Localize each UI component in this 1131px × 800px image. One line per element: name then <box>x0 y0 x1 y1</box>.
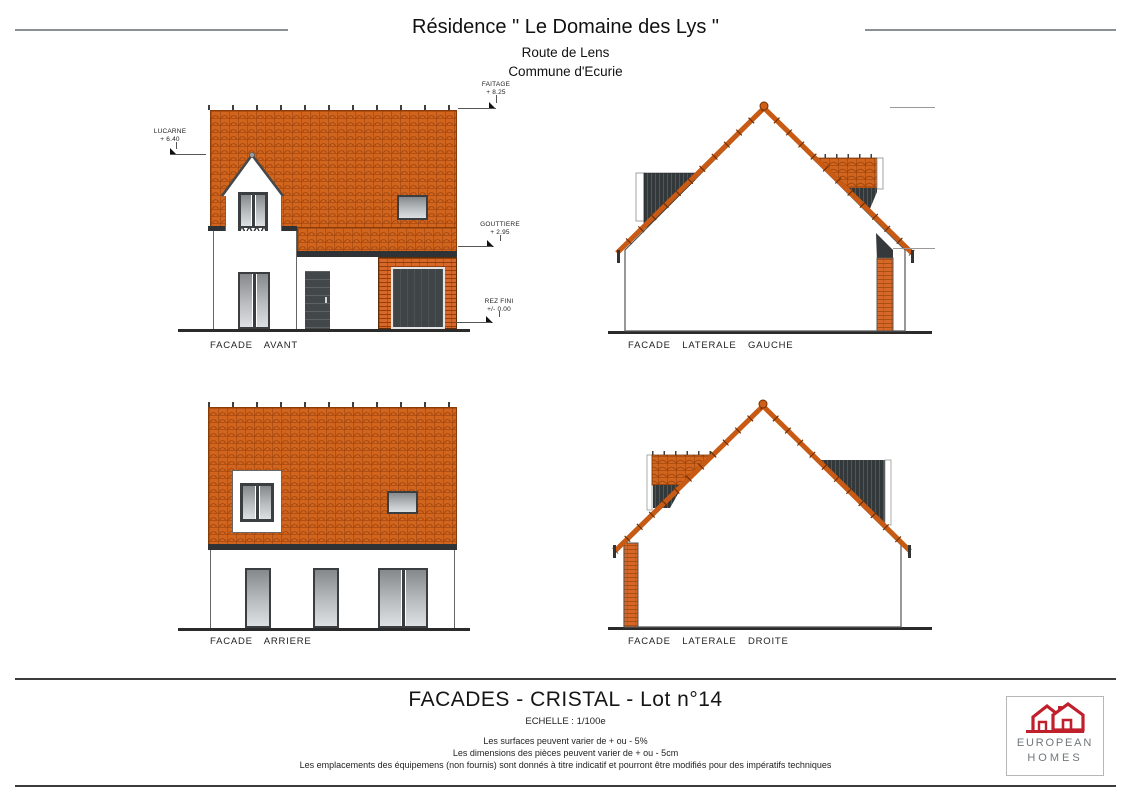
ref-line-gouttiere <box>893 248 935 249</box>
brick-pier-gauche <box>877 258 893 331</box>
french-door-pane-right <box>257 274 269 327</box>
garage-roof-edge-droite <box>647 455 652 510</box>
caption-facade-laterale-droite: FACADE LATERALE DROITE <box>628 636 789 647</box>
title-block-bottom-rule <box>15 785 1116 787</box>
caption-facade-avant: FACADE AVANT <box>210 340 298 351</box>
facade-laterale-droite-drawing <box>595 393 940 638</box>
dormer-window-rear <box>240 483 274 522</box>
annotation-gouttiere-tick <box>500 235 501 241</box>
rear-double-door-pane-right <box>406 570 427 626</box>
logo-baseline <box>1026 730 1084 733</box>
gutter-hook-left <box>617 250 620 263</box>
garage-roof-edge <box>877 158 883 189</box>
title-block-note-1: Les surfaces peuvent varier de + ou - 5% <box>0 736 1131 746</box>
title-block-top-rule <box>15 678 1116 680</box>
ridge-finial-droite <box>759 400 767 408</box>
dormer-window-pane-left <box>241 195 251 226</box>
gutter-hook-right <box>911 250 914 263</box>
page-title: Résidence " Le Domaine des Lys " <box>0 16 1131 39</box>
logo-text-line2: HOMES <box>1007 752 1103 764</box>
rear-door-2 <box>313 568 339 628</box>
dormer-window-rear-pane-right <box>260 486 272 519</box>
dormer-window-rear-panes <box>243 486 271 519</box>
ref-line-faitage <box>890 107 935 108</box>
rear-door-1 <box>245 568 271 628</box>
annotation-faitage-label: FAITAGE <box>482 81 510 88</box>
annotation-lucarne-label: LUCARNE <box>154 128 186 135</box>
rear-double-door <box>378 568 428 628</box>
annotation-faitage-line <box>458 108 496 109</box>
european-homes-logo-icon <box>1025 701 1085 735</box>
page-subtitle-commune: Commune d'Ecurie <box>0 64 1131 79</box>
rear-double-door-pane-left <box>380 570 401 626</box>
rear-double-door-panes <box>380 570 426 626</box>
caption-facade-arriere: FACADE ARRIERE <box>210 636 312 647</box>
annotation-rez-fini-label: REZ FINI <box>485 298 514 305</box>
facade-arriere-drawing <box>175 393 475 643</box>
entry-door <box>305 271 330 329</box>
dormer-window-rear-pane-left <box>243 486 255 519</box>
gable-wall-droite <box>624 408 901 627</box>
annotation-lucarne-line <box>170 154 206 155</box>
dormer-gable <box>219 150 289 197</box>
garage-door <box>391 267 445 329</box>
ridge-finial <box>760 102 768 110</box>
dormer-finial <box>250 153 255 158</box>
gutter-hook-right-droite <box>908 545 911 558</box>
gable-wall-gauche <box>625 110 905 331</box>
gutter-hook-left-droite <box>613 545 616 558</box>
annotation-gouttiere-line <box>458 246 492 247</box>
title-block-scale: ECHELLE : 1/100e <box>0 716 1131 727</box>
roof-window <box>397 195 428 220</box>
annotation-gouttiere-label: GOUTTIERE <box>480 221 520 228</box>
european-homes-logo: EUROPEAN HOMES <box>1006 696 1104 776</box>
drawing-sheet: { "header": { "title": "Résidence \" Le … <box>0 0 1131 800</box>
title-block-note-2: Les dimensions des pièces peuvent varier… <box>0 748 1131 758</box>
title-block-title: FACADES - CRISTAL - Lot n°14 <box>0 688 1131 712</box>
logo-text-line1: EUROPEAN <box>1007 737 1103 749</box>
french-door <box>238 272 270 329</box>
logo-door-left <box>1039 722 1046 730</box>
ground-line-avant <box>178 329 470 332</box>
facade-avant-drawing <box>175 95 475 345</box>
annotation-rez-fini-tick <box>499 311 500 317</box>
brick-pier-droite <box>624 543 638 627</box>
ground-line-arriere <box>178 628 470 631</box>
french-door-panes <box>240 274 268 327</box>
caption-facade-laterale-gauche: FACADE LATERALE GAUCHE <box>628 340 793 351</box>
french-door-pane-left <box>240 274 252 327</box>
roof-window-rear <box>387 491 418 514</box>
facade-laterale-gauche-drawing <box>595 95 940 340</box>
dormer-gable-roofline <box>222 155 283 196</box>
title-block-note-3: Les emplacements des équipemens (non fou… <box>0 760 1131 770</box>
dormer-window-pane-right <box>256 195 266 226</box>
dormer-window-panes <box>241 195 265 226</box>
dormer-side-edge-droite <box>885 460 891 525</box>
logo-house-right <box>1053 704 1083 730</box>
page-subtitle-address: Route de Lens <box>0 45 1131 60</box>
dormer-side-edge <box>636 173 644 221</box>
annotation-lucarne: LUCARNE + 6.40 <box>140 128 200 144</box>
annotation-faitage-tick <box>496 95 497 103</box>
entry-door-handle <box>325 297 327 303</box>
annotation-rez-fini-line <box>455 322 491 323</box>
